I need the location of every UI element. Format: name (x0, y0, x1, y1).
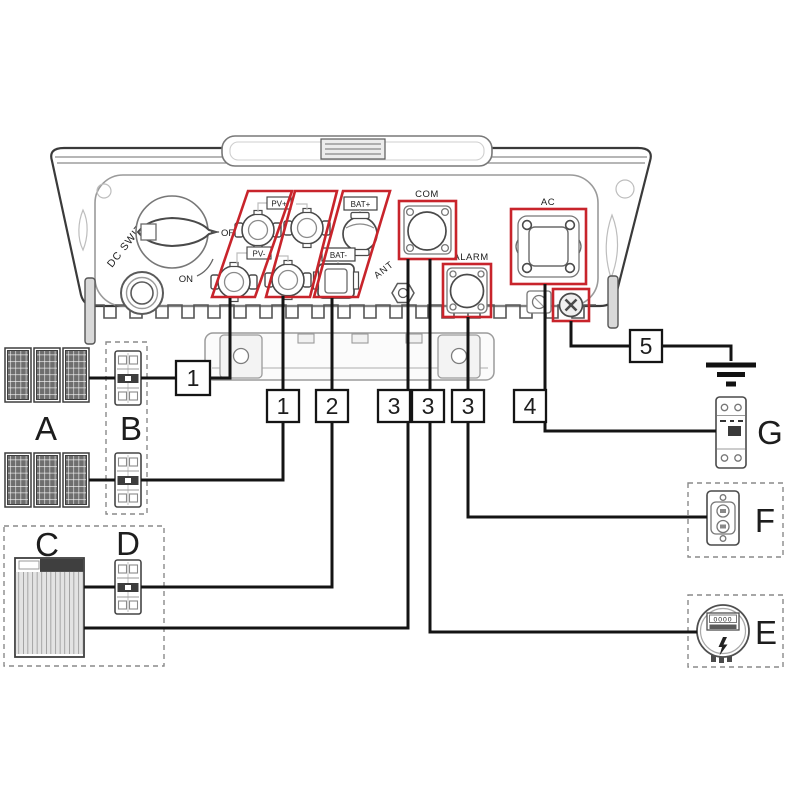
bat-minus-label: BAT- (330, 251, 348, 260)
callout-4-ac: 4 (514, 390, 546, 422)
svg-text:PV+: PV+ (271, 200, 287, 209)
ac-breaker-g (716, 397, 746, 468)
callout-3-battery-com: 3 (378, 390, 410, 422)
label-pv-array: A (35, 410, 57, 447)
label-power-meter: E (755, 614, 777, 651)
wiring-diagram-svg: DC SWITCH OFF ON PV+ (0, 0, 800, 800)
inverter-wiring-diagram: DC SWITCH OFF ON PV+ (0, 0, 800, 800)
pv-breaker-2 (115, 453, 141, 507)
svg-text:PV-: PV- (253, 250, 266, 259)
svg-text:3: 3 (388, 393, 401, 419)
ac-label: AC (541, 197, 555, 208)
svg-text:3: 3 (422, 393, 435, 419)
battery-breaker-d (115, 560, 141, 614)
meter-display: 0000 (713, 617, 732, 624)
ground-clip (527, 291, 551, 313)
label-signal-device: F (755, 502, 775, 539)
label-battery: C (35, 526, 59, 563)
alarm-port: ALARM (447, 252, 489, 313)
battery-c (15, 558, 84, 657)
dc-switch-on-label: ON (179, 274, 193, 285)
callout-3-alarm: 3 (452, 390, 484, 422)
svg-text:4: 4 (524, 393, 537, 419)
label-battery-breaker: D (116, 525, 140, 562)
callout-1-pv-string-2: 1 (267, 390, 299, 422)
svg-text:2: 2 (326, 393, 339, 419)
left-foot (85, 278, 95, 344)
svg-text:5: 5 (640, 333, 653, 359)
nameplate (321, 139, 385, 159)
top-mounting-plate (222, 136, 492, 166)
label-ac-breaker: G (757, 414, 783, 451)
pv-breaker-1 (115, 351, 141, 405)
com-label: COM (415, 189, 439, 200)
callout-3-meter-com: 3 (412, 390, 444, 422)
right-foot (608, 276, 618, 328)
svg-text:1: 1 (187, 365, 200, 391)
callout-1-pv-string-1: 1 (176, 361, 210, 395)
ground-screw (560, 294, 583, 317)
svg-text:1: 1 (277, 393, 290, 419)
cable-gland (121, 272, 163, 314)
svg-text:3: 3 (462, 393, 475, 419)
pv-minus-label: PV- (247, 247, 271, 259)
bat-plus-label: BAT+ (351, 200, 371, 209)
label-pv-breakers: B (120, 410, 142, 447)
alarm-label: ALARM (453, 252, 488, 263)
callout-2-battery-power: 2 (316, 390, 348, 422)
mounting-rail (205, 333, 494, 380)
callout-5-ground: 5 (630, 330, 662, 362)
